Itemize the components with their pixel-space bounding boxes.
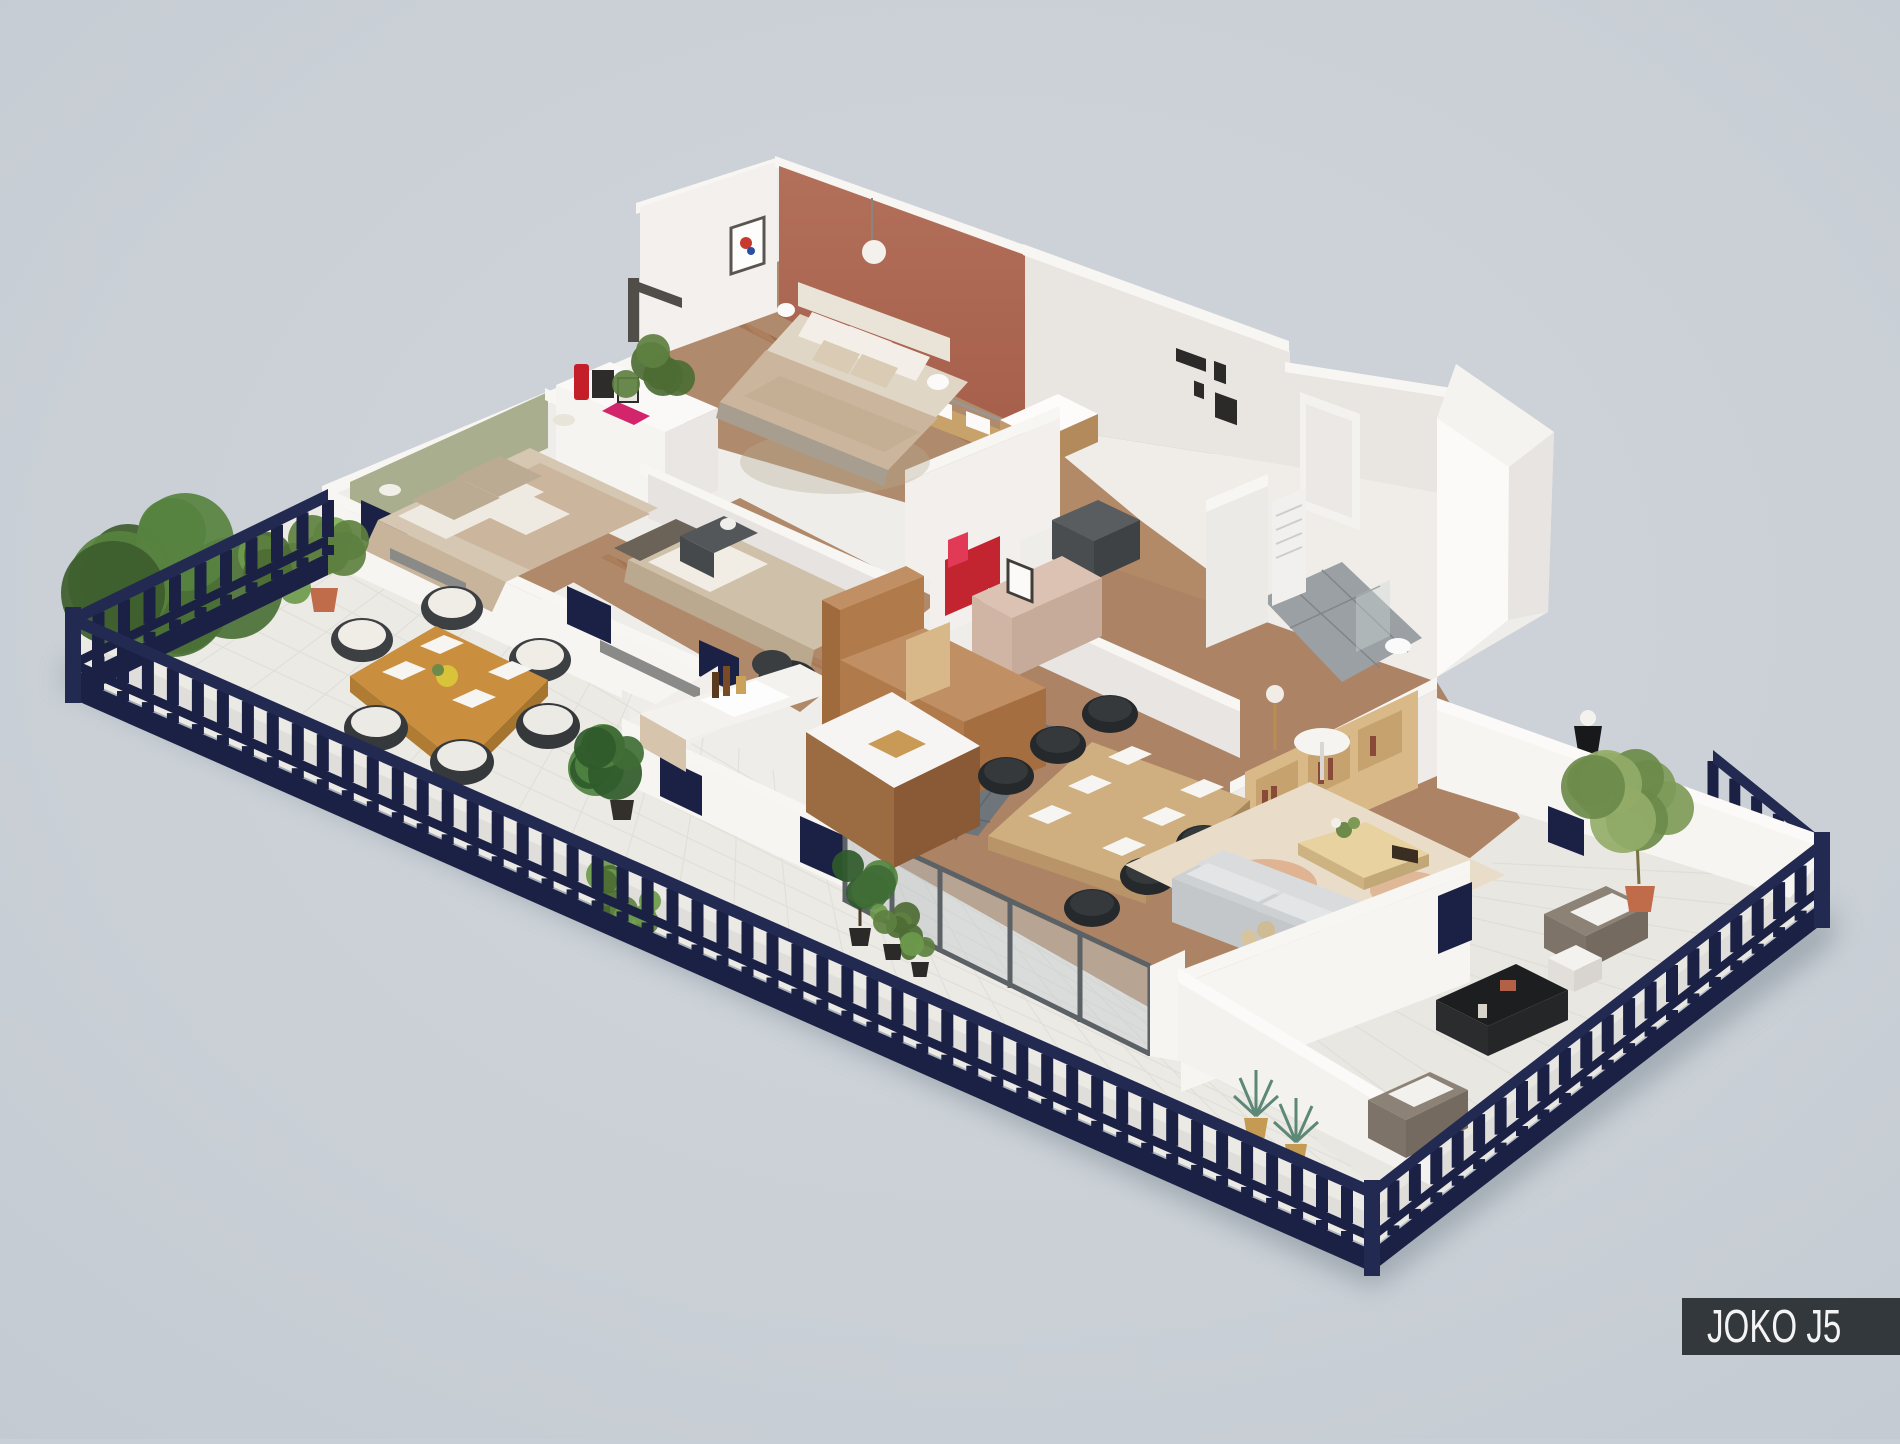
svg-text:JOKO J5: JOKO J5 bbox=[1707, 1302, 1841, 1352]
